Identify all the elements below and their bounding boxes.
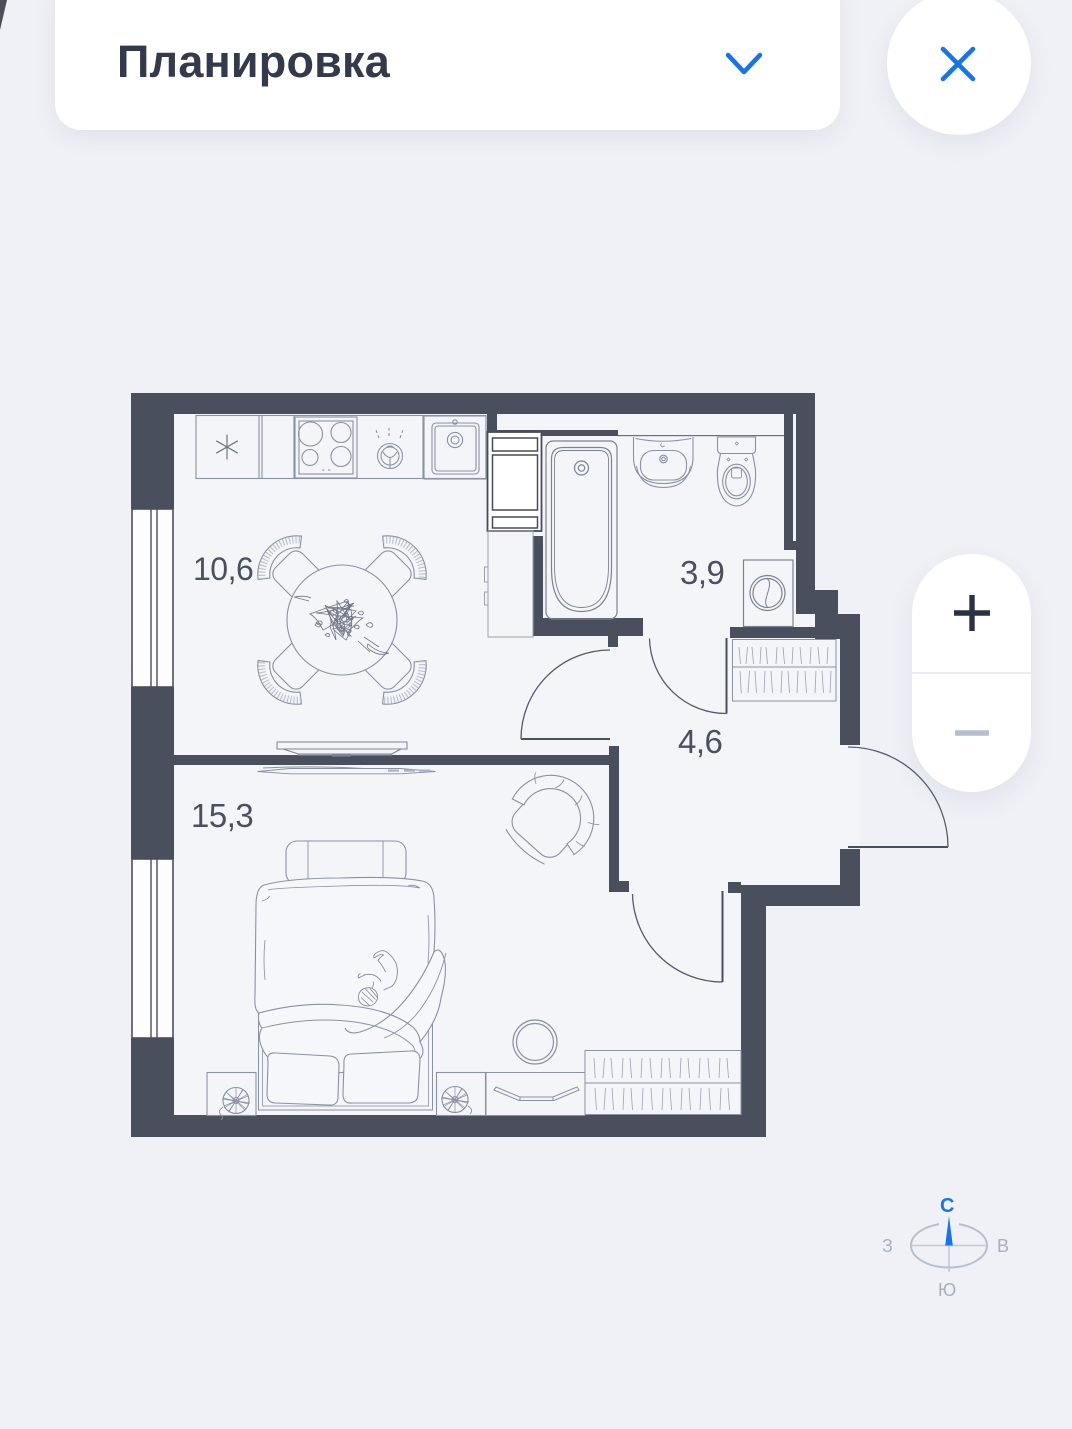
svg-text:В: В	[997, 1236, 1009, 1256]
svg-text:Ю: Ю	[938, 1280, 956, 1300]
svg-text:15,3: 15,3	[191, 797, 253, 834]
svg-text:С: С	[940, 1195, 954, 1217]
svg-text:10,6: 10,6	[193, 551, 253, 587]
svg-text:4,6: 4,6	[678, 723, 722, 760]
svg-text:З: З	[882, 1236, 893, 1256]
svg-text:3,9: 3,9	[680, 554, 724, 591]
